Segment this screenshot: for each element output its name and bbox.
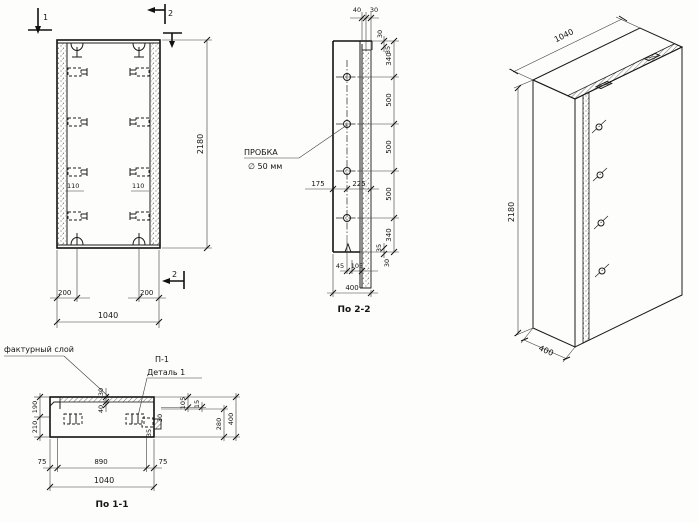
- dim-total-400: 400: [345, 284, 358, 292]
- dim-bracket-left: 110: [67, 182, 79, 190]
- dim-b-1040: 1040: [94, 476, 114, 485]
- s11-dims-right: 105 15 280 400: [154, 393, 240, 441]
- cut-mark-2-bottom: 2: [162, 270, 184, 289]
- left-rib-hatch: [58, 43, 66, 245]
- bracket-row-2: [68, 118, 149, 126]
- dim-chain-4: 340: [385, 228, 393, 241]
- panel-outline: [57, 40, 160, 248]
- dim-chain-0: 340: [385, 52, 393, 65]
- section-2-2-view: ПРОБКА ∅ 50 мм 40 30 30 35: [244, 6, 399, 315]
- dim-det-35: 35: [145, 429, 153, 437]
- dim-b-890: 890: [94, 458, 107, 466]
- cut-mark-1: 1: [28, 8, 52, 34]
- top-lifting-loops: [71, 43, 145, 57]
- s11-brackets: [64, 414, 144, 424]
- facing-layer-label: фактурный слой: [4, 345, 74, 354]
- s22-dims-bottom-right: 35 30: [375, 243, 391, 267]
- s11-dims-left: 190 210: [31, 393, 50, 441]
- dim-mid-40: 40: [97, 405, 105, 413]
- iso-groove: [583, 92, 589, 343]
- dim-chain-2: 500: [385, 140, 393, 153]
- section-1-1-view: 30 35 фактурный слой П-1 Деталь 1 190 21: [4, 345, 240, 510]
- plug-label-line2: ∅ 50 мм: [248, 162, 282, 171]
- s11-dims-bottom: 75 890 75 1040: [38, 437, 168, 491]
- iso-dim-width-label: 1040: [553, 27, 575, 44]
- plug-label-line1: ПРОБКА: [244, 148, 278, 157]
- plug-holes: [336, 60, 359, 235]
- dim-chain-1: 500: [385, 93, 393, 106]
- dim-bot-105: 105: [351, 262, 363, 270]
- dim-height-label: 2180: [196, 134, 205, 154]
- bracket-row-4: [68, 212, 149, 220]
- iso-wide-face: [575, 47, 682, 347]
- detail-label-2: Деталь 1: [147, 368, 185, 377]
- isometric-view: 1040 2180 400: [507, 16, 682, 362]
- iso-plugs: [592, 120, 609, 277]
- front-dims-bottom: 200 200 1040: [50, 248, 166, 328]
- cut-label-2-top: 2: [168, 9, 173, 18]
- dim-tr-30: 30: [376, 30, 384, 38]
- dim-b-75l: 75: [38, 458, 47, 466]
- iso-dim-depth-label: 400: [537, 343, 555, 357]
- drawing-sheet: 110 110 1 2: [0, 0, 698, 523]
- iso-dim-depth: 400: [521, 328, 575, 362]
- side-brackets: 110 110: [66, 68, 149, 220]
- front-elevation-view: 110 110 1 2: [28, 4, 212, 328]
- s11-detail-p1: 30 35: [142, 414, 164, 437]
- dim-mid-30: 30: [97, 388, 105, 396]
- detail-label-1: П-1: [155, 355, 169, 364]
- dim-top-30: 30: [370, 6, 378, 14]
- dim-bracket-right: 110: [132, 182, 144, 190]
- dim-br-35: 35: [375, 244, 383, 252]
- cut-mark-1-right: [163, 33, 182, 48]
- dim-det-30: 30: [156, 414, 164, 422]
- s22-dims-top-right: 30 35: [376, 30, 392, 54]
- cut-label-2-bottom: 2: [172, 270, 177, 279]
- dim-top-40: 40: [353, 6, 361, 14]
- dim-mid-225: 225: [352, 180, 365, 188]
- right-rib-hatch: [151, 43, 159, 245]
- dim-r-15: 15: [193, 400, 201, 408]
- cut-label-1: 1: [43, 13, 48, 22]
- dim-width-total: 1040: [98, 311, 118, 320]
- iso-top-joint-hatch: [568, 44, 682, 99]
- iso-dim-height-label: 2180: [507, 202, 516, 222]
- dim-left-210: 210: [31, 421, 39, 433]
- section-1-1-caption: По 1-1: [95, 500, 128, 510]
- dim-offset-left: 200: [58, 289, 71, 297]
- bottom-loop: [345, 244, 351, 252]
- iso-narrow-face: [533, 80, 575, 347]
- bracket-row-3: [68, 168, 149, 176]
- dim-r-400: 400: [227, 413, 235, 425]
- dim-r-105: 105: [179, 397, 187, 409]
- iso-dim-height: 2180: [507, 80, 533, 336]
- dim-offset-right: 200: [140, 289, 153, 297]
- dim-mid-175: 175: [311, 180, 324, 188]
- front-dim-height: 2180: [162, 37, 212, 251]
- panel-drawing-svg: 110 110 1 2: [0, 0, 698, 523]
- bottom-anchors: [71, 233, 145, 245]
- facing-layer-callout: фактурный слой: [4, 345, 108, 396]
- s22-dims-top: 40 30: [350, 6, 379, 50]
- dim-b-75r: 75: [159, 458, 168, 466]
- dim-chain-3: 500: [385, 187, 393, 200]
- dim-br-30: 30: [383, 259, 391, 267]
- s22-dims-bottom-small: 45 105: [336, 235, 378, 274]
- section-2-2-caption: По 2-2: [337, 305, 370, 315]
- cut-mark-2-top: 2: [147, 4, 173, 24]
- dim-r-280: 280: [215, 418, 223, 430]
- dim-bot-45: 45: [336, 262, 344, 270]
- plug-callout: ПРОБКА ∅ 50 мм: [244, 125, 347, 171]
- dim-left-190: 190: [31, 401, 39, 413]
- bracket-row-1: [68, 68, 149, 76]
